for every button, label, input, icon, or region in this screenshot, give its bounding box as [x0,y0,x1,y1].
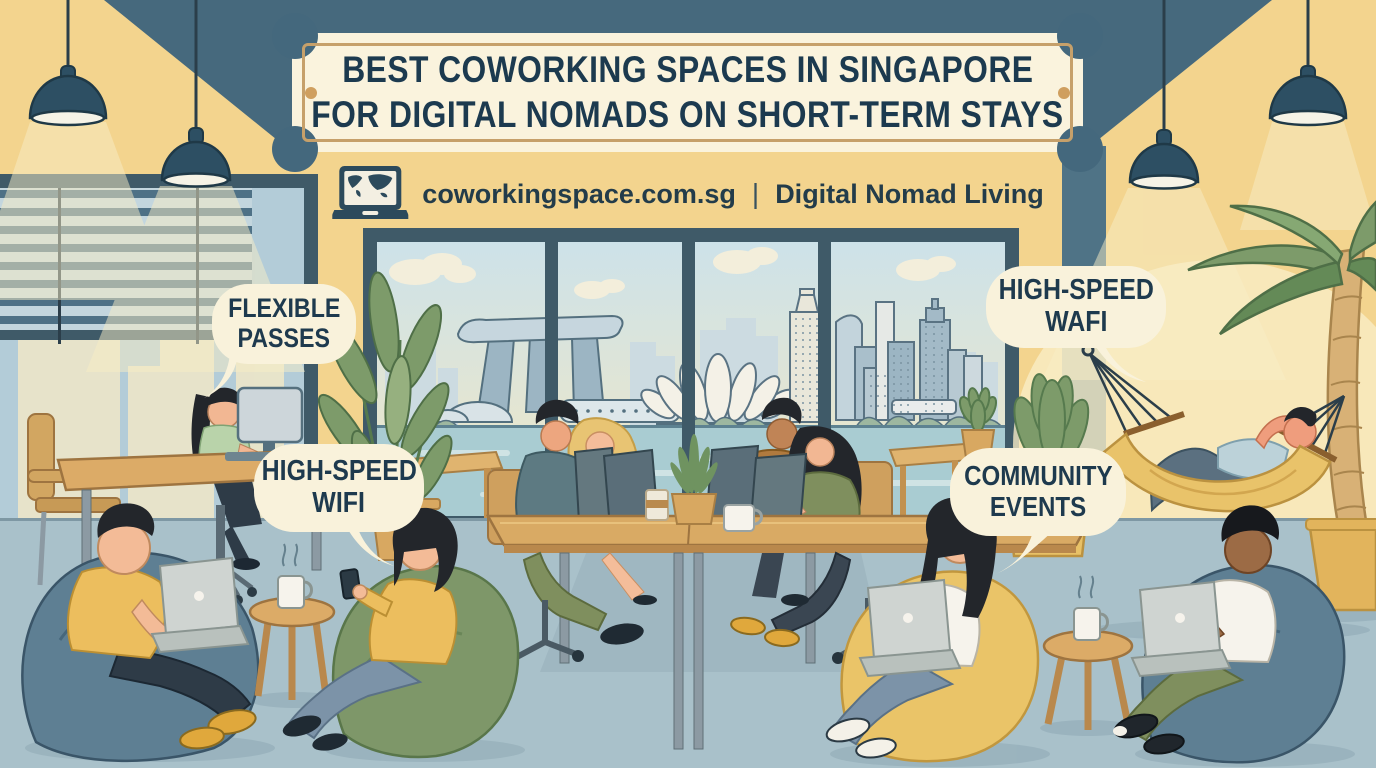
coworking-infographic: BEST COWORKING SPACES IN SINGAPORE FOR D… [0,0,1376,768]
ceiling [104,0,1272,152]
coffee-mug-left [278,576,304,608]
centerpiece-pot [672,494,716,524]
laptop-silver-left [152,558,248,652]
laptop-silver-yellow [860,580,960,676]
desktop-monitor [238,388,302,442]
laptop-silver-right [1132,582,1230,676]
coffee-mug-right [1074,608,1100,640]
illustration-scene [0,0,1376,768]
coffee-mug-table [724,505,754,531]
